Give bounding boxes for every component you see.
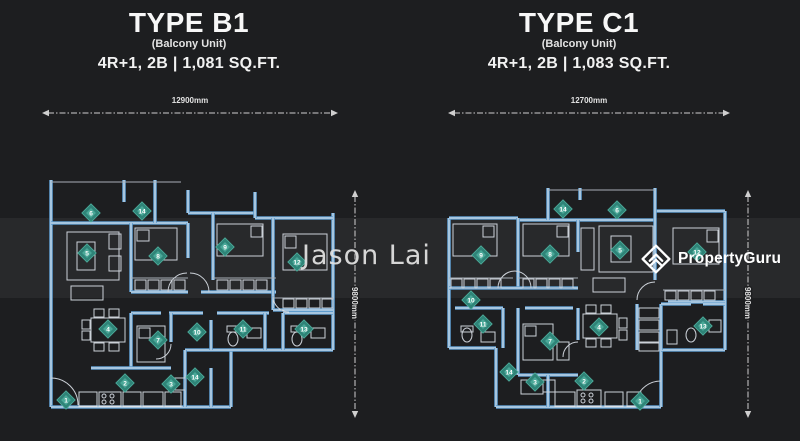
- furniture: [593, 278, 625, 292]
- furniture: [148, 280, 159, 290]
- room-marker-number: 5: [618, 247, 622, 254]
- furniture: [639, 343, 659, 351]
- furniture: [605, 392, 623, 406]
- room-marker-number: 3: [533, 379, 537, 386]
- room-marker-number: 13: [699, 323, 707, 330]
- unit-c1-spec: 4R+1, 2B | 1,083 SQ.FT.: [423, 55, 735, 73]
- furniture: [525, 326, 536, 336]
- room-marker-number: 4: [106, 326, 110, 333]
- stove-burner: [102, 394, 106, 398]
- furniture: [217, 280, 228, 290]
- door-arc: [637, 282, 655, 300]
- room-marker-number: 5: [85, 250, 89, 257]
- room-marker-number: 1: [64, 397, 68, 404]
- furniture: [586, 305, 596, 313]
- furniture: [557, 226, 568, 237]
- furniture: [109, 343, 119, 351]
- arrow-left-icon: [42, 110, 49, 116]
- furniture: [256, 280, 267, 290]
- furniture: [283, 299, 294, 308]
- room-marker-number: 8: [548, 251, 552, 258]
- room-marker-number: 7: [548, 338, 552, 345]
- propertyguru-logo: PropertyGuru: [640, 242, 781, 276]
- furniture: [251, 226, 262, 237]
- room-marker-number: 6: [615, 207, 619, 214]
- furniture: [639, 320, 659, 330]
- propertyguru-diamond-icon: [640, 242, 672, 276]
- room-marker-number: 14: [191, 374, 199, 381]
- unit-c1-title: TYPE C1: [423, 8, 735, 38]
- furniture: [139, 328, 150, 338]
- room-marker-number: 14: [505, 369, 513, 376]
- furniture: [707, 230, 718, 242]
- room-marker-number: 6: [89, 210, 93, 217]
- propertyguru-logo-text: PropertyGuru: [678, 250, 781, 268]
- furniture: [230, 280, 241, 290]
- door-arc: [190, 273, 209, 292]
- furniture: [94, 309, 104, 317]
- arrow-right-icon: [723, 110, 730, 116]
- room-marker-number: 8: [156, 253, 160, 260]
- height-dimension-c1: 9800mm: [737, 188, 759, 420]
- arrow-down-icon: [745, 411, 751, 418]
- room-marker-number: 14: [138, 208, 146, 215]
- stove-burner: [589, 399, 593, 403]
- furniture: [704, 291, 715, 300]
- room-marker-number: 12: [293, 259, 301, 266]
- door-arc: [563, 342, 578, 357]
- furniture: [123, 392, 141, 406]
- furniture: [639, 308, 659, 318]
- furniture: [639, 332, 659, 342]
- stove-burner: [110, 400, 114, 404]
- height-dimension-b1-label: 9800mm: [350, 287, 359, 319]
- furniture: [601, 305, 611, 313]
- room-marker-number: 13: [300, 326, 308, 333]
- room-marker-number: 2: [582, 378, 586, 385]
- furniture: [453, 224, 497, 256]
- furniture: [619, 330, 627, 340]
- furniture: [577, 390, 601, 406]
- furniture: [174, 280, 185, 290]
- furniture: [691, 291, 702, 300]
- unit-b1-title: TYPE B1: [33, 8, 345, 38]
- unit-b1-header: TYPE B1 (Balcony Unit) 4R+1, 2B | 1,081 …: [33, 8, 345, 73]
- furniture: [619, 318, 627, 328]
- furniture: [557, 342, 569, 360]
- furniture: [82, 320, 90, 329]
- room-marker-number: 10: [193, 329, 201, 336]
- unit-c1-subtitle: (Balcony Unit): [423, 38, 735, 50]
- stove-burner: [589, 393, 593, 397]
- stove-burner: [581, 393, 585, 397]
- unit-c1-header: TYPE C1 (Balcony Unit) 4R+1, 2B | 1,083 …: [423, 8, 735, 73]
- furniture: [586, 339, 596, 347]
- room-marker-number: 1: [638, 398, 642, 405]
- furniture: [678, 291, 689, 300]
- stove-burner: [102, 400, 106, 404]
- furniture: [82, 331, 90, 340]
- room-marker-number: 11: [480, 321, 487, 328]
- floorplan-c1: 146985121011741314321: [423, 180, 733, 414]
- toilet: [686, 328, 696, 342]
- furniture: [285, 236, 296, 248]
- furniture: [309, 299, 320, 308]
- toilet: [462, 328, 472, 342]
- floorplan-b1: 614589124710111323141: [31, 180, 341, 414]
- height-dimension-c1-label: 9800mm: [743, 287, 752, 319]
- agent-watermark: Jason Lai: [302, 240, 431, 271]
- furniture: [483, 226, 494, 237]
- furniture: [665, 291, 676, 300]
- furniture: [135, 280, 146, 290]
- width-dimension-b1-label: 12900mm: [172, 96, 208, 105]
- furniture: [296, 299, 307, 308]
- door-arc: [168, 273, 187, 292]
- width-dimension-c1: 12700mm: [446, 94, 732, 120]
- furniture: [71, 286, 103, 300]
- arrow-down-icon: [352, 411, 358, 418]
- furniture: [161, 280, 172, 290]
- furniture: [94, 343, 104, 351]
- furniture: [165, 392, 181, 406]
- furniture: [99, 392, 121, 406]
- floorplan-brochure: TYPE B1 (Balcony Unit) 4R+1, 2B | 1,081 …: [0, 0, 800, 441]
- arrow-left-icon: [448, 110, 455, 116]
- furniture: [601, 339, 611, 347]
- room-marker-number: 7: [156, 337, 160, 344]
- room-marker-number: 14: [559, 206, 567, 213]
- furniture: [581, 228, 594, 270]
- room-marker-number: 10: [467, 297, 475, 304]
- arrow-right-icon: [331, 110, 338, 116]
- furniture: [555, 392, 575, 406]
- room-marker-number: 9: [479, 252, 483, 259]
- furniture: [79, 392, 97, 406]
- furniture: [667, 330, 677, 344]
- width-dimension-b1: 12900mm: [40, 94, 340, 120]
- width-dimension-c1-label: 12700mm: [571, 96, 607, 105]
- height-dimension-b1: 9800mm: [344, 188, 366, 420]
- stove-burner: [110, 394, 114, 398]
- furniture: [137, 230, 149, 241]
- unit-b1-subtitle: (Balcony Unit): [33, 38, 345, 50]
- arrow-up-icon: [745, 190, 751, 197]
- unit-b1-spec: 4R+1, 2B | 1,081 SQ.FT.: [33, 55, 345, 73]
- furniture: [143, 392, 163, 406]
- room-marker-number: 9: [223, 244, 227, 251]
- stove-burner: [581, 399, 585, 403]
- room-marker-number: 11: [240, 326, 247, 333]
- furniture: [243, 280, 254, 290]
- room-marker-number: 2: [123, 380, 127, 387]
- arrow-up-icon: [352, 190, 358, 197]
- room-marker-number: 4: [597, 324, 601, 331]
- furniture: [109, 309, 119, 317]
- room-marker-number: 3: [169, 381, 173, 388]
- toilet: [228, 332, 238, 346]
